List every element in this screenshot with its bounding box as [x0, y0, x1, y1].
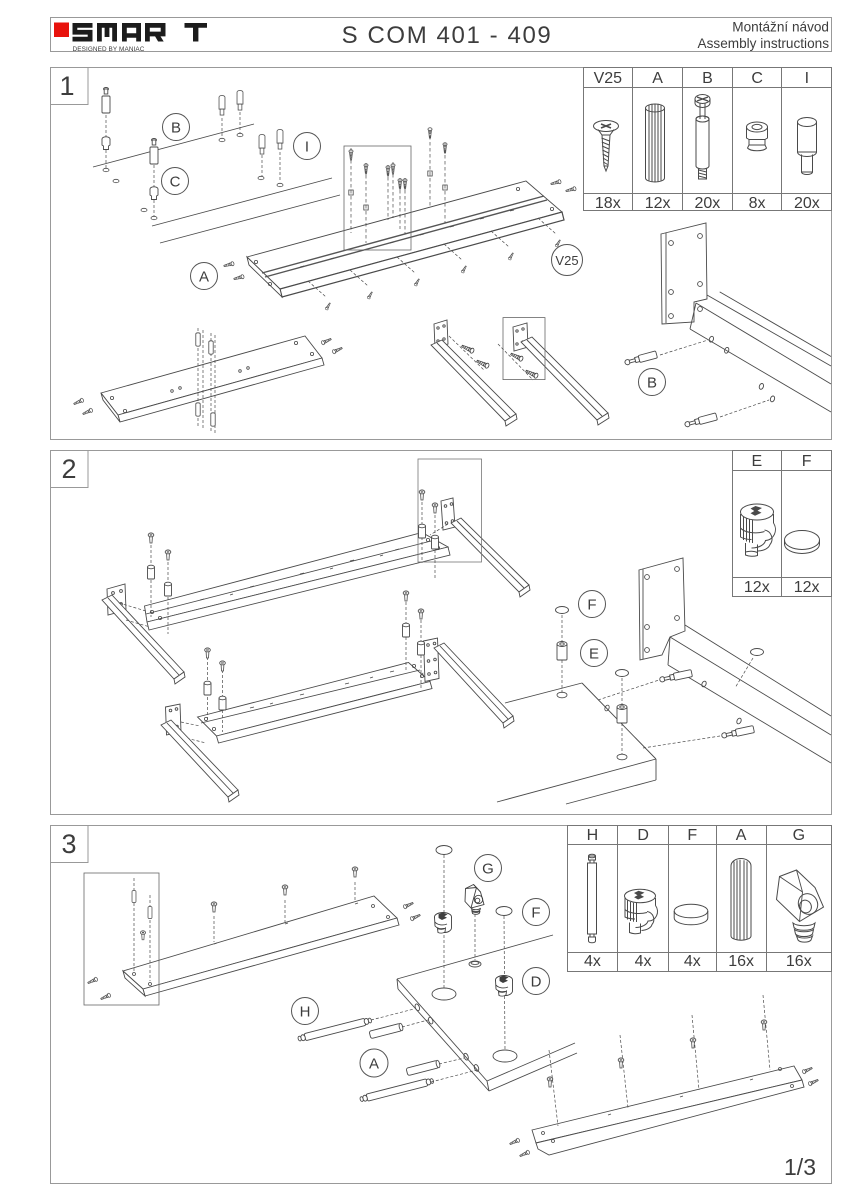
svg-text:B: B: [647, 375, 657, 392]
svg-text:12x: 12x: [794, 579, 820, 596]
svg-text:H: H: [300, 1004, 311, 1021]
svg-text:12x: 12x: [744, 579, 770, 596]
svg-text:S COM 401 - 409: S COM 401 - 409: [342, 22, 553, 49]
svg-text:Assembly instructions: Assembly instructions: [698, 36, 830, 51]
svg-text:A: A: [736, 827, 747, 844]
svg-text:F: F: [587, 597, 596, 614]
svg-text:DESIGNED BY MANIAC: DESIGNED BY MANIAC: [73, 46, 145, 53]
svg-text:G: G: [482, 861, 494, 878]
svg-text:F: F: [802, 453, 812, 470]
svg-text:A: A: [369, 1056, 379, 1073]
svg-text:V25: V25: [594, 70, 623, 87]
svg-text:4x: 4x: [684, 953, 701, 970]
svg-text:1/3: 1/3: [784, 1154, 816, 1180]
svg-text:12x: 12x: [645, 195, 671, 212]
svg-text:20x: 20x: [794, 195, 820, 212]
svg-text:2: 2: [61, 454, 76, 484]
svg-text:H: H: [587, 827, 599, 844]
svg-text:D: D: [531, 974, 542, 991]
svg-text:G: G: [793, 827, 805, 844]
svg-text:Montážní návod: Montážní návod: [732, 20, 829, 35]
svg-text:8x: 8x: [749, 195, 766, 212]
svg-text:B: B: [702, 70, 713, 87]
svg-text:C: C: [170, 174, 181, 191]
svg-text:B: B: [171, 120, 181, 137]
svg-text:D: D: [637, 827, 649, 844]
svg-text:20x: 20x: [695, 195, 721, 212]
svg-text:F: F: [531, 905, 540, 922]
svg-text:I: I: [305, 139, 309, 156]
svg-text:F: F: [687, 827, 697, 844]
svg-text:1: 1: [59, 71, 74, 101]
svg-text:C: C: [751, 70, 763, 87]
svg-text:16x: 16x: [786, 953, 812, 970]
svg-text:4x: 4x: [584, 953, 601, 970]
svg-text:A: A: [199, 269, 209, 286]
svg-text:V25: V25: [555, 253, 578, 268]
svg-text:4x: 4x: [635, 953, 652, 970]
svg-text:E: E: [751, 453, 762, 470]
svg-text:A: A: [652, 70, 663, 87]
svg-text:18x: 18x: [595, 195, 621, 212]
svg-text:E: E: [589, 646, 599, 663]
svg-text:3: 3: [61, 829, 76, 859]
svg-text:I: I: [805, 70, 809, 87]
svg-text:16x: 16x: [728, 953, 754, 970]
